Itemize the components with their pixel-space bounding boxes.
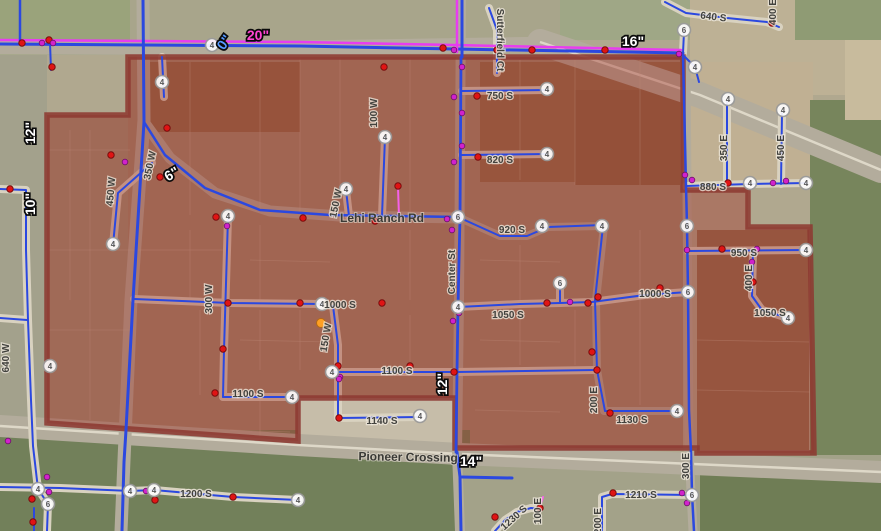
pipe-node[interactable]: 4: [156, 76, 169, 89]
pipe-size-label: 10": [22, 193, 38, 215]
pipe-s14-stub[interactable]: [462, 477, 512, 478]
aerial-patch: [795, 0, 881, 40]
valve-dot-magenta[interactable]: [224, 223, 230, 229]
street-label: 450 E: [776, 135, 787, 161]
street-label: 1130 S: [616, 415, 647, 426]
pipe-node-label: 4: [36, 485, 41, 494]
valve-dot-red[interactable]: [474, 93, 480, 99]
valve-dot-magenta[interactable]: [451, 47, 457, 53]
street-label: 200 E: [589, 387, 600, 413]
valve-dot-red[interactable]: [395, 183, 401, 189]
pipe-node-label: 4: [344, 185, 349, 194]
valve-dot-red[interactable]: [451, 369, 457, 375]
pipe-node[interactable]: 4: [292, 494, 305, 507]
pipe-node-label: 4: [296, 496, 301, 505]
map-canvas: 4446444444464464444466444444446444620"0"…: [0, 0, 881, 531]
valve-dot-red[interactable]: [49, 64, 55, 70]
street-label: 1000 S: [639, 289, 671, 300]
valve-dot-magenta[interactable]: [749, 259, 755, 265]
valve-dot-red[interactable]: [475, 154, 481, 160]
pipe-node[interactable]: 4: [596, 220, 609, 233]
street-label: Sutterfield Ct: [494, 9, 505, 72]
pipe-node[interactable]: 4: [124, 485, 137, 498]
water-network-map: 4446444444464464444466444444446444620"0"…: [0, 0, 881, 531]
valve-dot-red[interactable]: [225, 300, 231, 306]
valve-dot-red[interactable]: [164, 125, 170, 131]
valve-dot-red[interactable]: [610, 490, 616, 496]
pipe-node-label: 4: [152, 486, 157, 495]
pipe-node-label: 6: [456, 213, 461, 222]
pipe-node[interactable]: 4: [222, 210, 235, 223]
pipe-node[interactable]: 6: [681, 220, 694, 233]
valve-dot-red[interactable]: [585, 300, 591, 306]
street-label: 1100 S: [232, 389, 263, 400]
pipe-node-label: 4: [804, 246, 809, 255]
pipe-node[interactable]: 6: [682, 286, 695, 299]
valve-dot-magenta[interactable]: [459, 143, 465, 149]
pipe-node-label: 6: [686, 288, 691, 297]
pipe-node[interactable]: 6: [42, 498, 55, 511]
street-label: 1050 S: [754, 308, 786, 319]
pipe-node[interactable]: 4: [541, 83, 554, 96]
valve-dot-red[interactable]: [230, 494, 236, 500]
valve-dot-magenta[interactable]: [676, 51, 682, 57]
street-label: 1000 S: [324, 300, 356, 311]
street-label: 880 S: [700, 182, 726, 193]
valve-dot-magenta[interactable]: [451, 159, 457, 165]
valve-dot-red[interactable]: [719, 246, 725, 252]
pipe-node[interactable]: 4: [536, 220, 549, 233]
valve-dot-magenta[interactable]: [39, 40, 45, 46]
pipe-node-label: 6: [690, 491, 695, 500]
valve-dot-magenta[interactable]: [450, 318, 456, 324]
pipe-node[interactable]: 6: [686, 489, 699, 502]
valve-dot-red[interactable]: [108, 152, 114, 158]
valve-dot-red[interactable]: [29, 496, 35, 502]
valve-dot-magenta[interactable]: [682, 172, 688, 178]
pipe-node-label: 4: [781, 106, 786, 115]
valve-dot-magenta[interactable]: [444, 216, 450, 222]
pipe-node-label: 4: [48, 362, 53, 371]
street-label: 1100 S: [381, 366, 412, 377]
pipe-node-label: 4: [545, 150, 550, 159]
pipe-node[interactable]: 4: [800, 244, 813, 257]
valve-dot-red[interactable]: [529, 47, 535, 53]
valve-dot-magenta[interactable]: [684, 247, 690, 253]
valve-dot-red[interactable]: [589, 349, 595, 355]
pipe-node-label: 6: [685, 222, 690, 231]
valve-dot-magenta[interactable]: [44, 474, 50, 480]
pipe-node-label: 6: [682, 26, 687, 35]
street-label: Lehi Ranch Rd: [340, 211, 424, 225]
pipe-node-label: 4: [540, 222, 545, 231]
pipe-node-label: 4: [545, 85, 550, 94]
pipe-node-label: 4: [160, 78, 165, 87]
valve-dot-magenta[interactable]: [50, 40, 56, 46]
pipe-size-label: 14": [460, 453, 482, 469]
pipe-node-label: 4: [383, 133, 388, 142]
valve-dot-red[interactable]: [157, 174, 163, 180]
pipe-node-label: 4: [804, 179, 809, 188]
pipe-node[interactable]: 6: [678, 24, 691, 37]
pipe-node-label: 4: [786, 314, 791, 323]
street-label: 750 S: [487, 91, 513, 102]
valve-dot-magenta[interactable]: [567, 299, 573, 305]
street-label: 1200 S: [180, 489, 212, 500]
pipe-size-label: 12": [434, 373, 450, 395]
street-label: 950 S: [731, 248, 757, 259]
pipe-node[interactable]: 6: [452, 211, 465, 224]
valve-dot-magenta[interactable]: [122, 159, 128, 165]
pipe-node[interactable]: 4: [148, 484, 161, 497]
street-label: 1210 S: [625, 490, 657, 501]
valve-dot-red[interactable]: [492, 514, 498, 520]
valve-dot-red[interactable]: [212, 390, 218, 396]
street-label: 1050 S: [492, 310, 524, 321]
street-label: 350 E: [719, 135, 730, 161]
pipe-node-label: 4: [675, 407, 680, 416]
valve-dot-red[interactable]: [594, 367, 600, 373]
pipe-size-label: 20": [247, 27, 269, 43]
pipe-node[interactable]: 4: [379, 131, 392, 144]
valve-dot-red[interactable]: [440, 45, 446, 51]
valve-dot-magenta[interactable]: [770, 180, 776, 186]
pipe-node-label: 4: [330, 368, 335, 377]
pipe-node-label: 4: [693, 63, 698, 72]
valve-dot-magenta[interactable]: [679, 490, 685, 496]
street-label: 400 E: [744, 265, 755, 291]
valve-dot-red[interactable]: [213, 214, 219, 220]
pipe-node-label: 4: [128, 487, 133, 496]
valve-dot-magenta[interactable]: [449, 227, 455, 233]
street-label: 300 W: [204, 284, 215, 313]
pipe-node-label: 6: [46, 500, 51, 509]
valve-dot-red[interactable]: [595, 294, 601, 300]
pipe-node[interactable]: 4: [671, 405, 684, 418]
pipe-node[interactable]: 4: [286, 391, 299, 404]
valve-dot-red[interactable]: [602, 47, 608, 53]
pipe-node-label: 6: [558, 279, 563, 288]
valve-dot-red[interactable]: [336, 415, 342, 421]
pipe-node[interactable]: 4: [452, 301, 465, 314]
pipe-node-label: 4: [290, 393, 295, 402]
valve-dot-red[interactable]: [607, 410, 613, 416]
valve-dot-magenta[interactable]: [5, 438, 11, 444]
pipe-node-label: 4: [111, 240, 116, 249]
valve-dot-red[interactable]: [19, 40, 25, 46]
street-label: Center St: [447, 249, 458, 294]
valve-dot-red[interactable]: [381, 64, 387, 70]
valve-dot-red[interactable]: [544, 300, 550, 306]
aerial-patch: [845, 40, 881, 120]
street-label: 820 S: [487, 155, 513, 166]
pipe-node-label: 4: [418, 412, 423, 421]
pipe-node[interactable]: 4: [107, 238, 120, 251]
valve-dot-red[interactable]: [152, 497, 158, 503]
pipe-node-label: 4: [456, 303, 461, 312]
valve-dot-red[interactable]: [297, 300, 303, 306]
pipe-node[interactable]: 6: [554, 277, 567, 290]
pipe-node[interactable]: 4: [722, 93, 735, 106]
valve-dot-red[interactable]: [7, 186, 13, 192]
pipe-size-label: 12": [22, 122, 38, 144]
pipe-node-label: 4: [748, 179, 753, 188]
pipe-node[interactable]: 4: [326, 366, 339, 379]
pipe-node[interactable]: 4: [744, 177, 757, 190]
valve-dot-magenta[interactable]: [783, 178, 789, 184]
street-label: Pioneer Crossing: [358, 449, 458, 465]
pipe-node[interactable]: 4: [800, 177, 813, 190]
pipe-node[interactable]: 4: [689, 61, 702, 74]
pipe-node-label: 4: [726, 95, 731, 104]
valve-dot-red[interactable]: [30, 519, 36, 525]
street-label: 300 E: [681, 453, 692, 479]
street-label: 200 E: [593, 508, 604, 531]
valve-dot-magenta[interactable]: [689, 177, 695, 183]
pipe-node[interactable]: 4: [541, 148, 554, 161]
valve-dot-magenta[interactable]: [451, 94, 457, 100]
pipe-size-label: 16": [622, 33, 644, 49]
pipe-node[interactable]: 4: [777, 104, 790, 117]
street-label: 640 W: [1, 343, 12, 372]
pipe-node-label: 4: [226, 212, 231, 221]
valve-dot-red[interactable]: [379, 300, 385, 306]
valve-dot-red[interactable]: [220, 346, 226, 352]
street-label: 920 S: [499, 225, 525, 236]
pipe-node[interactable]: 4: [32, 483, 45, 496]
street-label: 100 E: [533, 498, 544, 524]
street-label: 400 E: [768, 0, 779, 25]
pipe-node[interactable]: 4: [44, 360, 57, 373]
street-label: 1140 S: [366, 416, 397, 427]
valve-dot-magenta[interactable]: [46, 489, 52, 495]
valve-dot-magenta[interactable]: [459, 64, 465, 70]
pipe-node[interactable]: 4: [414, 410, 427, 423]
valve-dot-magenta[interactable]: [459, 110, 465, 116]
street-label: 100 W: [369, 98, 380, 127]
pipe-node-label: 4: [600, 222, 605, 231]
valve-dot-red[interactable]: [300, 215, 306, 221]
